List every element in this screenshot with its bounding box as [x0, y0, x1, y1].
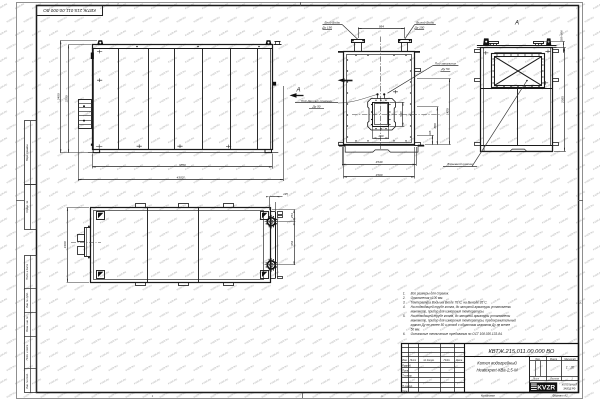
svg-text:254: 254	[290, 213, 294, 219]
svg-text:ЗАВОД РФ: ЗАВОД РФ	[563, 388, 575, 391]
svg-text:Взрывной клапан: Взрывной клапан	[447, 162, 472, 166]
svg-text:Температура Воды на Входе 70°С: Температура Воды на Входе 70°С, на Выход…	[411, 300, 488, 304]
svg-text:KVZR: KVZR	[537, 385, 555, 392]
svg-text:Утв.: Утв.	[402, 390, 408, 393]
svg-text:На отводящей трубе котла, до з: На отводящей трубе котла, до запорной ар…	[411, 314, 511, 318]
svg-text:1500: 1500	[376, 173, 383, 177]
svg-text:185×956: 185×956	[559, 30, 563, 42]
svg-text:Перв. примен.: Перв. примен.	[25, 144, 29, 162]
svg-text:1.: 1.	[403, 291, 406, 295]
svg-text:Изм.: Изм.	[402, 359, 408, 362]
svg-text:Все размеры для справок.: Все размеры для справок.	[411, 291, 450, 295]
svg-text:954: 954	[379, 24, 384, 28]
svg-text:Дата: Дата	[455, 359, 463, 362]
svg-text:На подводящей трубе котла, до: На подводящей трубе котла, до запорной а…	[411, 305, 512, 309]
svg-text:А: А	[295, 87, 300, 93]
svg-text:Инв. № дубл.: Инв. № дубл.	[26, 292, 29, 308]
svg-text:3.: 3.	[403, 300, 406, 304]
svg-text:КОТЕЛЬНЫЙ: КОТЕЛЬНЫЙ	[562, 384, 577, 387]
svg-text:Взам. инв. №: Взам. инв. №	[26, 316, 29, 332]
svg-text:Отклонения ±100 мм.: Отклонения ±100 мм.	[411, 296, 444, 300]
svg-text:Т.контр.: Т.контр.	[402, 375, 412, 378]
svg-text:2.: 2.	[402, 296, 406, 300]
svg-text:Heatexpert-КВа-2,5-М: Heatexpert-КВа-2,5-М	[476, 368, 518, 373]
svg-text:Подп.: Подп.	[444, 359, 451, 362]
svg-text:А: А	[514, 21, 519, 27]
svg-text:195: 195	[428, 130, 432, 135]
svg-text:Инв. № подл.: Инв. № подл.	[26, 373, 29, 389]
svg-text:Вход Воды: Вход Воды	[325, 20, 341, 24]
svg-text:Ду 150: Ду 150	[414, 26, 425, 30]
svg-text:Ду 50: Ду 50	[440, 67, 449, 71]
svg-text:Листов: Листов	[549, 378, 559, 381]
svg-text:Масштаб: Масштаб	[564, 358, 576, 361]
svg-text:Лист: Лист	[532, 378, 539, 381]
svg-text:4300*: 4300*	[177, 175, 186, 179]
svg-text:Разраб.: Разраб.	[402, 365, 411, 368]
svg-text:КВТЖ.215.011.00.000 ВО: КВТЖ.215.011.00.000 ВО	[488, 349, 554, 355]
svg-text:800: 800	[433, 123, 437, 128]
svg-text:2400: 2400	[57, 93, 61, 101]
svg-text:135: 135	[283, 192, 288, 196]
svg-text:4.: 4.	[403, 305, 406, 309]
svg-text:3850: 3850	[179, 163, 186, 167]
svg-text:Н.контр.: Н.контр.	[402, 385, 413, 388]
svg-text:5.: 5.	[403, 314, 406, 318]
svg-text:6.: 6.	[403, 332, 406, 336]
svg-text:580: 580	[399, 111, 403, 116]
svg-text:А: А	[578, 301, 581, 305]
svg-text:Пров.: Пров.	[402, 370, 409, 373]
svg-text:Масса: Масса	[550, 358, 558, 361]
svg-text:1470: 1470	[445, 108, 449, 115]
svg-text:Ду 150: Ду 150	[321, 26, 332, 30]
svg-text:190: 190	[378, 134, 383, 138]
svg-text:1500: 1500	[63, 241, 67, 248]
svg-text:Остальные технические требован: Остальные технические требования по ОСТ …	[411, 332, 503, 336]
svg-text:КВТЖ.215.011.00.000 ВО: КВТЖ.215.011.00.000 ВО	[43, 8, 96, 13]
svg-text:Копировал: Копировал	[481, 394, 495, 398]
svg-text:954: 954	[290, 240, 294, 245]
svg-text:Котел водогрейный: Котел водогрейный	[477, 360, 517, 365]
svg-text:манометр, прибор для измерения: манометр, прибор для измерения температу…	[411, 309, 485, 313]
svg-text:2250: 2250	[64, 95, 68, 103]
svg-text:1540: 1540	[376, 160, 383, 164]
svg-text:№ докум.: № докум.	[423, 359, 434, 362]
svg-text:Лист: Лист	[409, 359, 416, 362]
svg-text:Ду 50: Ду 50	[311, 104, 320, 108]
svg-text:Формат А2: Формат А2	[552, 394, 568, 398]
svg-text:Выход Воды: Выход Воды	[416, 20, 435, 24]
svg-text:Под запальник: Под запальник	[435, 62, 457, 66]
svg-text:Лит.: Лит.	[534, 358, 541, 361]
svg-text:клапан Ду не менее 50 и отвод: клапан Ду не менее 50 и отвод с обратным…	[411, 323, 511, 327]
svg-text:манометр, прибор для измерения: манометр, прибор для измерения температу…	[411, 318, 517, 322]
svg-text:50 мм.: 50 мм.	[411, 327, 421, 331]
svg-text:Подп. и дата: Подп. и дата	[26, 263, 29, 279]
svg-text:Справ. №: Справ. №	[25, 201, 29, 213]
svg-text:Подп. и дата: Подп. и дата	[26, 344, 29, 360]
svg-text:1 : 20: 1 : 20	[566, 366, 574, 370]
svg-text:2055: 2055	[560, 96, 564, 104]
